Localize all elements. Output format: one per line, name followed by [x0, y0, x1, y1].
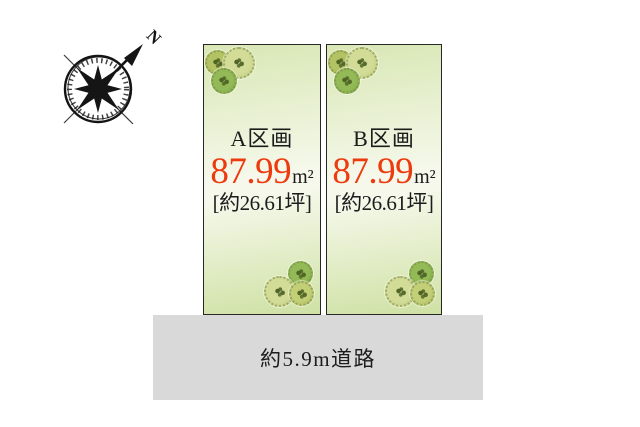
plot-tsubo: [約26.61坪]	[335, 191, 434, 215]
plot-name: A区画	[231, 126, 294, 151]
plot-b: B区画 87.99 m² [約26.61坪]	[326, 44, 442, 315]
plot-area: 87.99 m²	[332, 153, 435, 190]
area-value: 87.99	[332, 153, 413, 190]
plot-a: A区画 87.99 m² [約26.61坪]	[203, 44, 321, 315]
compass-rose-icon: N	[56, 26, 166, 140]
plot-area: 87.99 m²	[210, 153, 313, 190]
plot-b-info: B区画 87.99 m² [約26.61坪]	[327, 36, 441, 305]
road-label: 約5.9m道路	[260, 343, 376, 373]
plot-tsubo: [約26.61坪]	[213, 191, 312, 215]
area-unit: m²	[292, 167, 314, 187]
north-arrow-head	[124, 44, 143, 66]
area-value: 87.99	[210, 153, 291, 190]
road: 約5.9m道路	[153, 315, 483, 400]
land-plot-diagram: N A区画 87.99 m² [約26.61坪]	[0, 0, 640, 427]
plot-name: B区画	[353, 126, 415, 151]
plot-a-info: A区画 87.99 m² [約26.61坪]	[204, 36, 320, 305]
area-unit: m²	[414, 167, 436, 187]
compass-north-label: N	[143, 26, 166, 49]
